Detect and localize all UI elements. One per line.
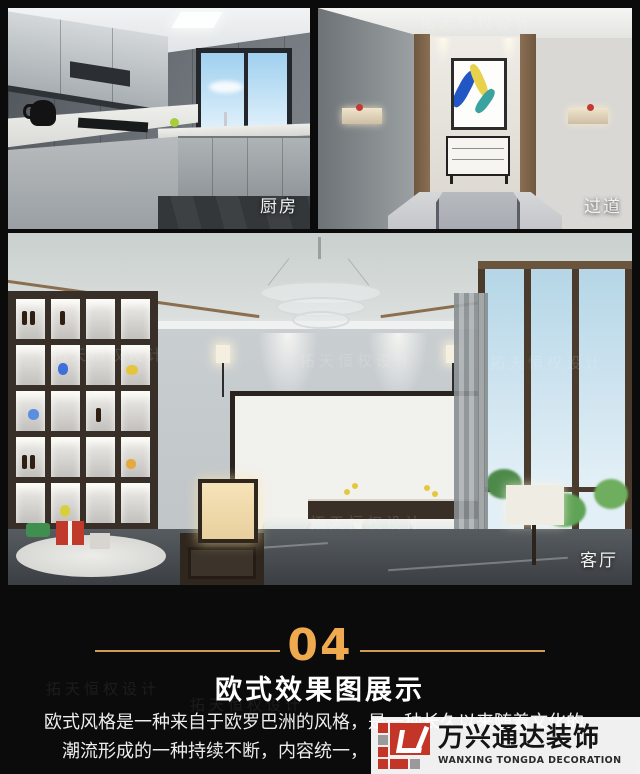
- foliage: [594, 479, 628, 509]
- chandelier: [260, 237, 380, 329]
- wine-bottle: [22, 455, 27, 469]
- faucet: [224, 112, 227, 126]
- section-number: 04: [0, 620, 640, 671]
- vase-blue: [58, 363, 68, 375]
- wine-bottle: [22, 311, 27, 325]
- section-title: 欧式效果图展示: [0, 668, 640, 707]
- orchid-flowers: [344, 489, 350, 495]
- vase-yellow: [126, 365, 138, 375]
- photo-living-room: 客厅: [8, 233, 632, 585]
- vase-blue: [28, 409, 39, 420]
- logo-square-gray: [410, 759, 420, 769]
- photo-corridor: 过道: [318, 8, 632, 229]
- chandelier-wire: [268, 258, 290, 285]
- orchid-flowers: [424, 485, 430, 491]
- floor-windows: [478, 261, 632, 573]
- sheer-curtain: [454, 293, 488, 565]
- photo-label-corridor: 过道: [584, 192, 622, 217]
- gift-box-red: [56, 521, 84, 545]
- brand-logo: 万兴通达装饰 WANXING TONGDA DECORATION: [371, 717, 640, 774]
- kettle: [30, 100, 56, 126]
- promo-poster: 厨房 过道: [0, 0, 640, 774]
- logo-square-big-red: [390, 723, 430, 755]
- wood-column-right: [520, 34, 536, 200]
- console-table: [446, 136, 510, 176]
- brand-name-en: WANXING TONGDA DECORATION: [438, 755, 622, 766]
- lantern-lamp: [198, 479, 258, 543]
- console-legs: [450, 174, 508, 184]
- abstract-painting: [451, 58, 507, 130]
- logo-square-red: [378, 759, 388, 769]
- wine-bottle: [30, 311, 35, 325]
- photo-label-kitchen: 厨房: [260, 192, 298, 217]
- downlight-glow: [434, 38, 452, 64]
- divider-right: [360, 650, 545, 652]
- orchid-flowers: [352, 483, 358, 489]
- vase-orange: [126, 459, 136, 469]
- toy-blocks: [26, 523, 50, 537]
- flower-vase: [356, 104, 363, 111]
- logo-square-red: [378, 723, 388, 733]
- logo-square-gray: [378, 735, 388, 745]
- chandelier-stem: [318, 237, 321, 259]
- wall-sconce-left: [216, 345, 230, 363]
- display-niche: [342, 108, 382, 124]
- vase-yellow: [60, 505, 70, 517]
- fruit: [170, 118, 179, 127]
- paint-stroke-teal: [473, 87, 498, 116]
- table-lamp-right: [506, 485, 564, 525]
- wine-bottle: [30, 455, 35, 469]
- brand-name-cn: 万兴通达装饰: [438, 725, 622, 752]
- orchid-flowers: [432, 491, 438, 497]
- wood-column-left: [414, 34, 430, 200]
- flower-vase: [587, 104, 594, 111]
- wine-bottle: [96, 408, 101, 422]
- photo-kitchen: 厨房: [8, 8, 310, 229]
- chandelier-tier: [292, 311, 350, 329]
- gift-box-white: [90, 533, 110, 549]
- brand-logo-text: 万兴通达装饰 WANXING TONGDA DECORATION: [438, 725, 622, 766]
- brand-logo-mark: [378, 723, 432, 769]
- floor-vein: [388, 557, 568, 572]
- wine-bottle: [60, 311, 65, 325]
- divider-left: [95, 650, 280, 652]
- cloud: [209, 81, 243, 93]
- logo-square-red: [378, 747, 388, 757]
- logo-square-red: [390, 759, 408, 769]
- photo-label-living: 客厅: [580, 546, 618, 571]
- floor-runner: [436, 192, 520, 229]
